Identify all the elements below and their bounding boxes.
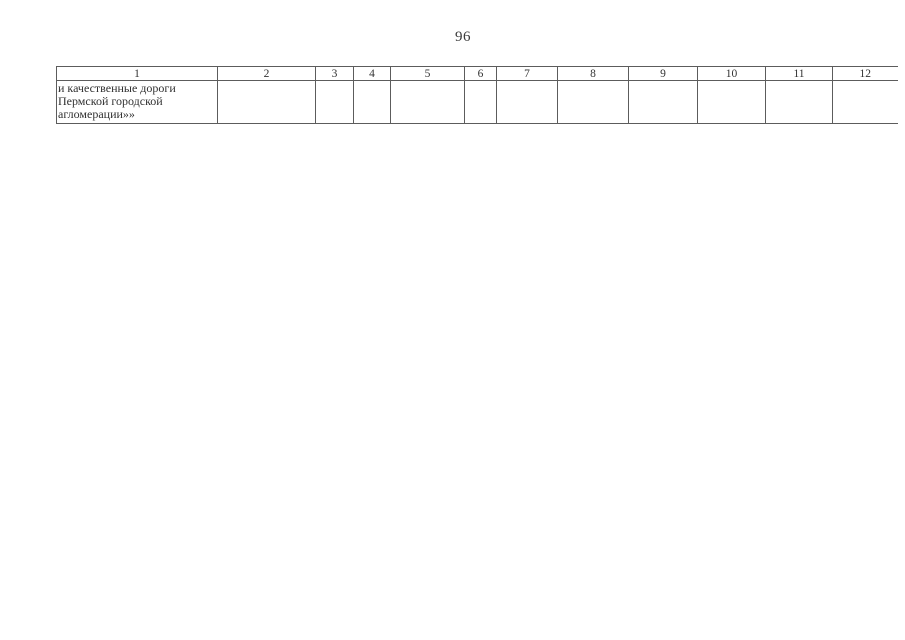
table-header-cell-12: 12	[833, 67, 898, 81]
table-header-cell-8: 8	[558, 67, 629, 81]
table-cell-empty-3	[316, 81, 354, 124]
table-header-cell-6: 6	[465, 67, 497, 81]
table-header-cell-11: 11	[766, 67, 833, 81]
table-cell-empty-4	[354, 81, 391, 124]
table-header-cell-2: 2	[218, 67, 316, 81]
table-cell-empty-12	[833, 81, 898, 124]
table-header-cell-5: 5	[391, 67, 465, 81]
data-table: 1 2 3 4 5 6 7 8 9 10 11 12 и качественны…	[56, 66, 898, 124]
table-header-cell-4: 4	[354, 67, 391, 81]
table-header-cell-7: 7	[497, 67, 558, 81]
table-cell-empty-9	[629, 81, 698, 124]
table-header-cell-3: 3	[316, 67, 354, 81]
table-cell-empty-2	[218, 81, 316, 124]
table-header-cell-10: 10	[698, 67, 766, 81]
table-cell-empty-6	[465, 81, 497, 124]
table-row: и качественные дороги Пермской городской…	[57, 81, 898, 124]
table-cell-empty-8	[558, 81, 629, 124]
cell-text-block: и качественные дороги Пермской городской…	[57, 81, 217, 121]
table-cell-description: и качественные дороги Пермской городской…	[57, 81, 218, 124]
table-header-row: 1 2 3 4 5 6 7 8 9 10 11 12	[57, 67, 898, 81]
table-cell-empty-10	[698, 81, 766, 124]
table-cell-empty-7	[497, 81, 558, 124]
page-number: 96	[455, 29, 471, 46]
cell-text-line-1: и качественные дороги	[58, 82, 216, 95]
cell-text-line-3: агломерации»»	[58, 108, 216, 121]
document-page: 96 1 2 3 4 5 6 7 8	[0, 0, 905, 640]
table-cell-empty-11	[766, 81, 833, 124]
table-cell-empty-5	[391, 81, 465, 124]
table-header-cell-9: 9	[629, 67, 698, 81]
table-header-cell-1: 1	[57, 67, 218, 81]
cell-text-line-2: Пермской городской	[58, 95, 216, 108]
